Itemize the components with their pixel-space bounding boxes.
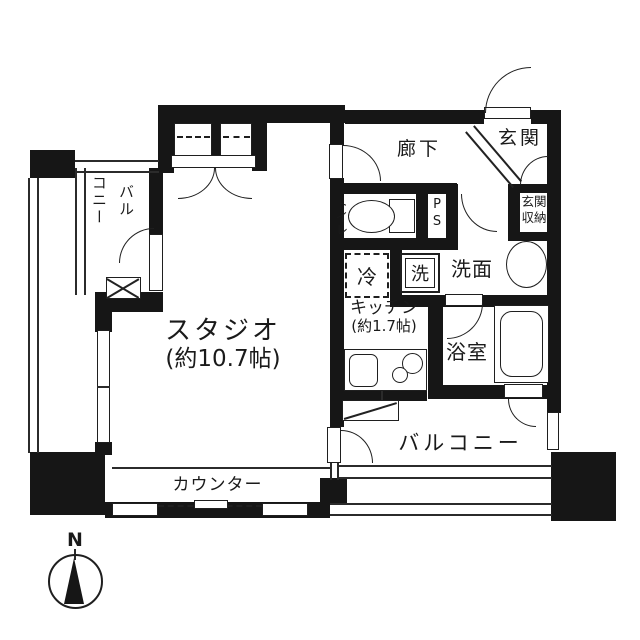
entrance-storage-label: 玄関 収納 <box>518 194 550 225</box>
hallway-label: 廊下 <box>392 139 446 161</box>
ps-line2: S <box>429 214 445 231</box>
toilet-bowl <box>348 200 395 233</box>
fridge-label: 冷 <box>357 261 377 290</box>
wall <box>547 117 561 413</box>
balcony-railing-line <box>330 514 552 516</box>
storage-door-arc <box>520 156 548 185</box>
wall <box>551 452 616 521</box>
studio-size-label: (約10.7帖) <box>143 346 303 372</box>
entrance-label: 玄関 <box>495 128 545 150</box>
stove-burner <box>392 367 408 383</box>
balcony-label: バルコニー <box>393 431 528 455</box>
balcony-railing-line <box>28 178 30 453</box>
compass-needle <box>64 558 84 604</box>
door-jamb <box>327 427 341 463</box>
fridge-box: 冷 <box>345 253 389 298</box>
window <box>112 503 158 516</box>
balcony-railing-line <box>330 503 552 505</box>
balcony-wall-line <box>75 168 77 295</box>
washroom-label: 洗面 <box>444 258 500 281</box>
balcony-opening <box>547 412 559 450</box>
counter-edge-line <box>112 467 330 469</box>
balcony-railing-line <box>339 465 552 467</box>
bathtub <box>500 311 543 377</box>
balcony-top-line <box>75 160 159 162</box>
counter-label: カウンター <box>170 476 265 496</box>
kitchen-label: キッチン <box>346 299 422 319</box>
closet-door-arc <box>215 168 252 199</box>
kitchen-size-label: (約1.7帖) <box>340 318 428 335</box>
wall <box>416 193 428 239</box>
bathroom-door-arc <box>447 303 483 339</box>
closet-track <box>171 155 256 168</box>
balcony-top-line <box>75 171 159 173</box>
studio-label: スタジオ <box>158 317 288 347</box>
entrance-door-arc <box>485 67 531 113</box>
wall <box>330 183 457 194</box>
bathroom-label: 浴室 <box>440 341 494 364</box>
counter-window-sill <box>194 500 228 509</box>
door-jamb <box>329 144 343 179</box>
wall <box>158 105 345 123</box>
studio-balcony-door-arc <box>341 430 373 463</box>
bath-balcony-door-arc <box>508 399 536 427</box>
kitchen-sink <box>349 354 378 387</box>
entrance-storage-line2: 収納 <box>518 210 550 226</box>
ps-line1: P <box>429 197 445 214</box>
ps-label: P S <box>429 197 445 231</box>
washer-label-box: 洗 <box>405 258 435 288</box>
closet-door-arc <box>178 168 215 199</box>
closet-cell <box>220 123 252 157</box>
wall <box>330 123 344 145</box>
window-mullion <box>97 386 110 388</box>
washbasin <box>506 241 547 288</box>
washroom-door-arc <box>461 194 497 232</box>
wall <box>320 478 347 505</box>
door-leaf <box>504 384 543 398</box>
wall <box>149 168 163 235</box>
wall <box>345 110 484 124</box>
closet-pole-line <box>223 136 250 138</box>
left-balcony-label-col-right: バル <box>116 184 137 260</box>
wall <box>508 232 561 241</box>
closet-pole-line <box>177 136 210 138</box>
left-balcony-label: コニー バル <box>89 175 137 260</box>
hallway-studio-door-arc <box>343 145 381 181</box>
wall <box>30 150 75 178</box>
floor-plan: 洗 冷 スタジオ (約10.7帖) 廊下 玄関 玄関 収納 トイレ P S 洗面… <box>0 0 640 640</box>
closet-cell <box>174 123 212 157</box>
wall <box>30 452 105 515</box>
left-balcony-label-col-left: コニー <box>89 175 110 260</box>
toilet-label: トイレ <box>333 190 347 244</box>
balcony-railing-line <box>339 477 552 479</box>
entrance-storage-line1: 玄関 <box>518 194 550 210</box>
balcony-wall-line <box>84 168 86 295</box>
balcony-railing-line <box>37 178 39 453</box>
wall-line <box>330 462 332 480</box>
window <box>262 503 308 516</box>
wall-line <box>337 462 339 480</box>
washer-label: 洗 <box>411 260 429 286</box>
